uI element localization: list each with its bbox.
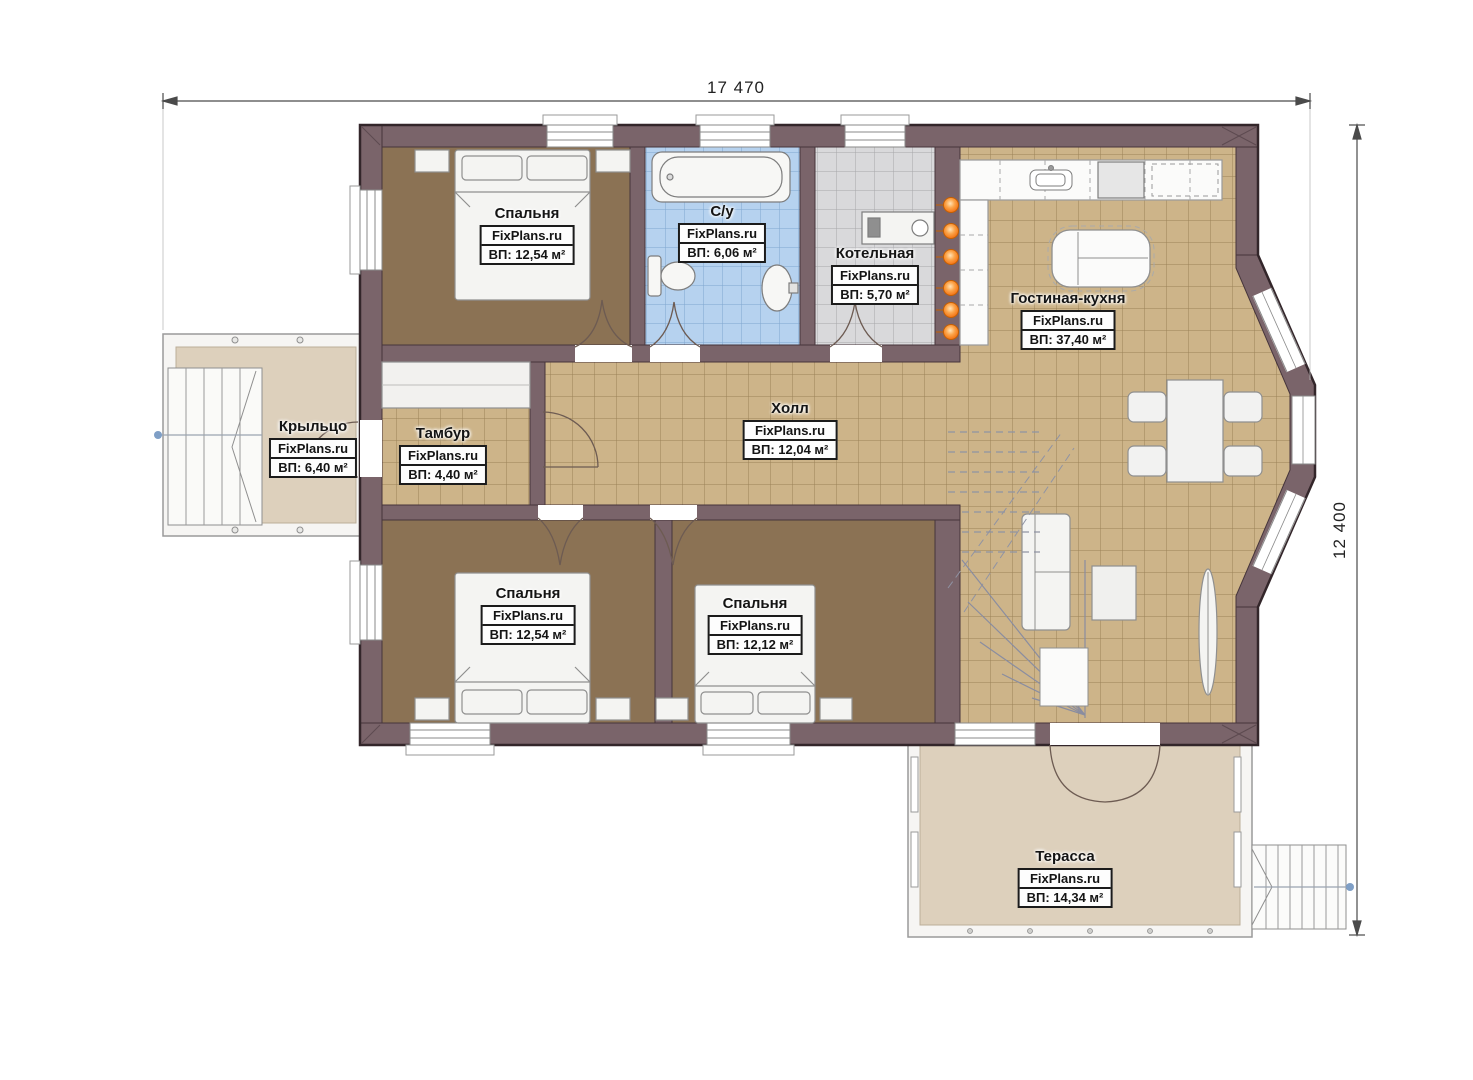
room-label-terrace: Терасса FixPlans.ru ВП: 14,34 м²: [1018, 848, 1113, 908]
wardrobe: [382, 362, 530, 408]
chair: [1128, 446, 1166, 476]
stair-direction-dot: [1346, 883, 1354, 891]
brand-watermark: FixPlans.ru: [1020, 870, 1111, 889]
room-area: ВП: 12,54 м²: [482, 246, 573, 263]
room-name: Спальня: [480, 205, 575, 222]
stove: [1098, 162, 1144, 198]
brand-watermark: FixPlans.ru: [483, 607, 574, 626]
room-info-box: FixPlans.ru ВП: 12,04 м²: [743, 420, 838, 460]
bathtub: [652, 152, 790, 202]
stair-direction-dot: [154, 431, 162, 439]
brand-watermark: FixPlans.ru: [1023, 312, 1114, 331]
room-label-boiler-room: Котельная FixPlans.ru ВП: 5,70 м²: [831, 245, 919, 305]
room-info-box: FixPlans.ru ВП: 4,40 м²: [399, 445, 487, 485]
bay-window-middle: [1292, 396, 1315, 464]
brand-watermark: FixPlans.ru: [482, 227, 573, 246]
room-name: Крыльцо: [269, 418, 357, 435]
room-area: ВП: 6,40 м²: [271, 459, 355, 476]
chair: [1128, 392, 1166, 422]
plant-decor: [1199, 569, 1217, 695]
window-top-1: [543, 115, 617, 147]
floorplan-canvas: [0, 0, 1473, 1080]
room-info-box: FixPlans.ru ВП: 37,40 м²: [1021, 310, 1116, 350]
dimension-width: 17 470: [707, 78, 765, 98]
brand-watermark: FixPlans.ru: [833, 267, 917, 286]
room-area: ВП: 14,34 м²: [1020, 889, 1111, 906]
room-info-box: FixPlans.ru ВП: 14,34 м²: [1018, 868, 1113, 908]
room-label-bedroom-1: Спальня FixPlans.ru ВП: 12,54 м²: [480, 205, 575, 265]
room-area: ВП: 12,12 м²: [710, 636, 801, 653]
room-name: Терасса: [1018, 848, 1113, 865]
terrace-outdoor-stairs: [1252, 845, 1354, 929]
room-label-hall: Холл FixPlans.ru ВП: 12,04 м²: [743, 400, 838, 460]
kitchen-island: [1048, 226, 1154, 291]
dining-table: [1167, 380, 1223, 482]
window-bottom-3: [955, 723, 1035, 745]
chair: [1224, 392, 1262, 422]
room-label-living-kitchen: Гостиная-кухня FixPlans.ru ВП: 37,40 м²: [1011, 290, 1126, 350]
terrace-deck: [908, 745, 1354, 937]
window-left-1: [350, 186, 382, 274]
brand-watermark: FixPlans.ru: [745, 422, 836, 441]
room-area: ВП: 37,40 м²: [1023, 331, 1114, 348]
room-info-box: FixPlans.ru ВП: 5,70 м²: [831, 265, 919, 305]
room-name: Котельная: [831, 245, 919, 262]
room-name: Спальня: [708, 595, 803, 612]
room-name: Тамбур: [399, 425, 487, 442]
room-area: ВП: 6,06 м²: [680, 244, 764, 261]
dimension-height: 12 400: [1330, 501, 1350, 559]
sofa: [1022, 514, 1070, 630]
room-info-box: FixPlans.ru ВП: 12,54 м²: [481, 605, 576, 645]
window-top-3: [841, 115, 909, 147]
room-label-bedroom-2: Спальня FixPlans.ru ВП: 12,54 м²: [481, 585, 576, 645]
room-name: Холл: [743, 400, 838, 417]
room-info-box: FixPlans.ru ВП: 6,06 м²: [678, 223, 766, 263]
room-area: ВП: 12,54 м²: [483, 626, 574, 643]
room-area: ВП: 12,04 м²: [745, 441, 836, 458]
brand-watermark: FixPlans.ru: [710, 617, 801, 636]
room-info-box: FixPlans.ru ВП: 12,54 м²: [480, 225, 575, 265]
window-bottom-2: [703, 723, 794, 755]
room-label-bedroom-3: Спальня FixPlans.ru ВП: 12,12 м²: [708, 595, 803, 655]
kitchen-counter-left: [960, 200, 988, 345]
room-info-box: FixPlans.ru ВП: 12,12 м²: [708, 615, 803, 655]
room-name: С/у: [678, 203, 766, 220]
room-label-vestibule: Тамбур FixPlans.ru ВП: 4,40 м²: [399, 425, 487, 485]
kitchen-counter-top: [960, 160, 1222, 200]
room-area: ВП: 5,70 м²: [833, 286, 917, 303]
window-bottom-1: [406, 723, 494, 755]
window-left-2: [350, 561, 382, 644]
window-top-2: [696, 115, 774, 147]
porch-stairs: [154, 368, 262, 525]
stair-landing: [1040, 648, 1088, 706]
room-name: Спальня: [481, 585, 576, 602]
room-area: ВП: 4,40 м²: [401, 466, 485, 483]
room-label-porch: Крыльцо FixPlans.ru ВП: 6,40 м²: [269, 418, 357, 478]
floor-plan-page: 17 470 12 400 Спальня FixPlans.ru ВП: 12…: [0, 0, 1473, 1080]
brand-watermark: FixPlans.ru: [680, 225, 764, 244]
boiler-unit: [862, 212, 934, 244]
brand-watermark: FixPlans.ru: [401, 447, 485, 466]
brand-watermark: FixPlans.ru: [271, 440, 355, 459]
chair: [1224, 446, 1262, 476]
room-label-bathroom: С/у FixPlans.ru ВП: 6,06 м²: [678, 203, 766, 263]
room-name: Гостиная-кухня: [1011, 290, 1126, 307]
coffee-table: [1092, 566, 1136, 620]
room-info-box: FixPlans.ru ВП: 6,40 м²: [269, 438, 357, 478]
